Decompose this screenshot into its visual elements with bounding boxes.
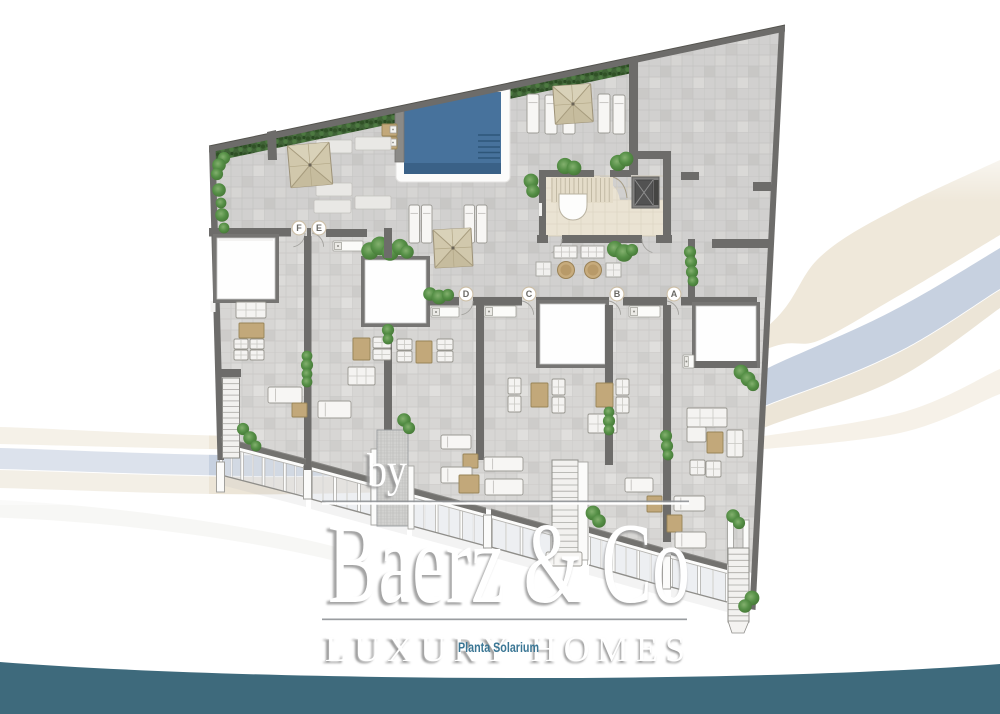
svg-text:by: by — [367, 444, 407, 497]
svg-text:Planta Solarium: Planta Solarium — [458, 640, 539, 655]
svg-text:Baerz & Co: Baerz & Co — [328, 500, 690, 628]
